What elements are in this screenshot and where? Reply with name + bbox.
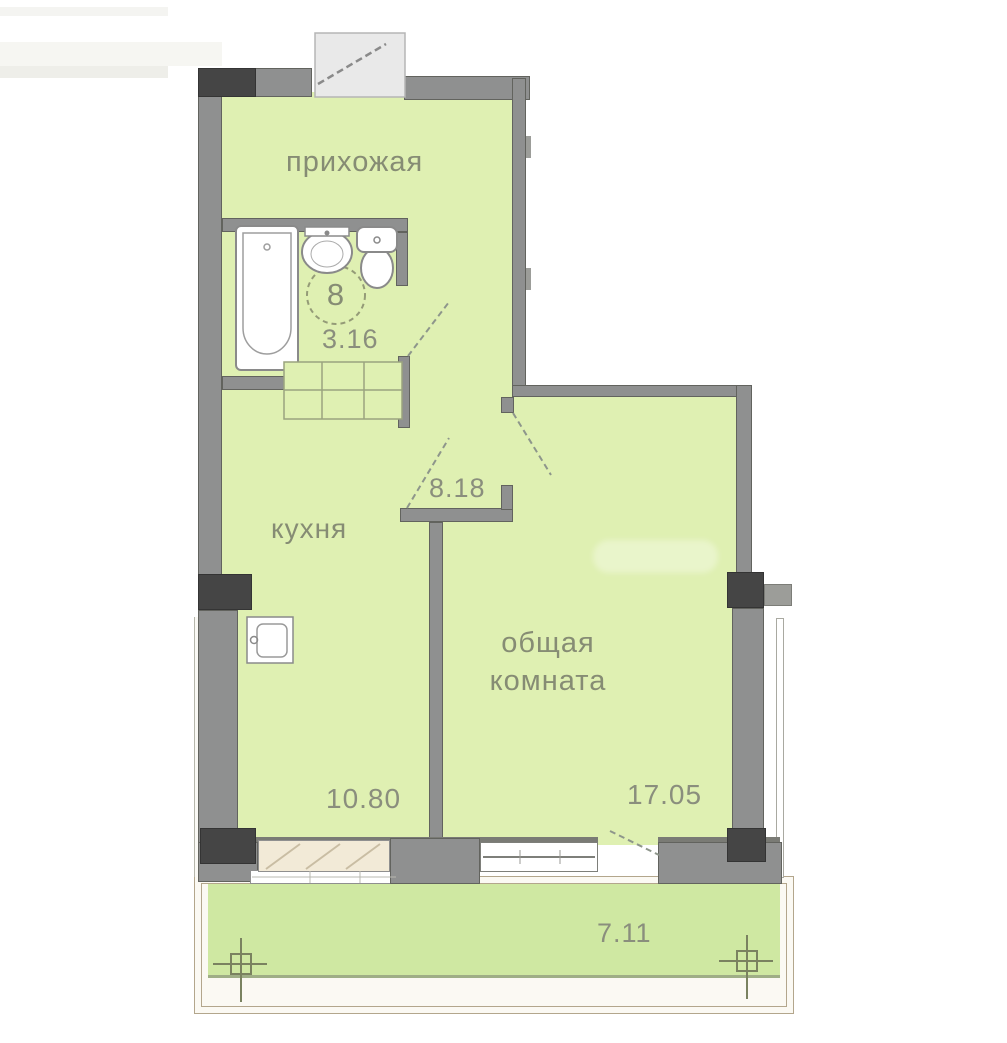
- entrance-door-icon: [315, 33, 405, 97]
- axis-marker-right: [719, 935, 773, 999]
- living-room-label-line2: комната: [477, 665, 619, 698]
- bathtub-icon: [236, 226, 298, 370]
- axis-marker-left: [213, 938, 267, 1002]
- kitchen-sink-icon: [247, 617, 293, 663]
- bathroom-door-swing: [408, 302, 449, 356]
- kitchen-window-hatch: [266, 844, 380, 869]
- plan-linework: [0, 0, 1007, 1043]
- corridor-area-label: 8.18: [429, 473, 486, 504]
- balcony-door-swing: [610, 831, 659, 855]
- bathroom-area-label: 3.16: [322, 324, 379, 355]
- balcony-area-label: 7.11: [597, 918, 652, 949]
- living-door-swing: [513, 413, 551, 475]
- living-room-area-label: 17.05: [627, 779, 702, 811]
- kitchen-area-label: 10.80: [326, 783, 401, 815]
- window-sill-marks: [252, 871, 396, 883]
- watermark-fragment: [593, 540, 718, 573]
- unit-number-label: 8: [321, 277, 351, 313]
- wardrobe-icon: [284, 362, 402, 419]
- floor-plan: прихожая 3.16 8 8.18 кухня общая комната…: [0, 0, 1007, 1043]
- toilet-icon: [357, 227, 397, 288]
- hallway-label: прихожая: [286, 146, 423, 179]
- living-room-label-line1: общая: [488, 627, 608, 660]
- washbasin-icon: [302, 227, 352, 273]
- kitchen-label: кухня: [271, 513, 347, 545]
- living-window-glazing: [483, 850, 595, 864]
